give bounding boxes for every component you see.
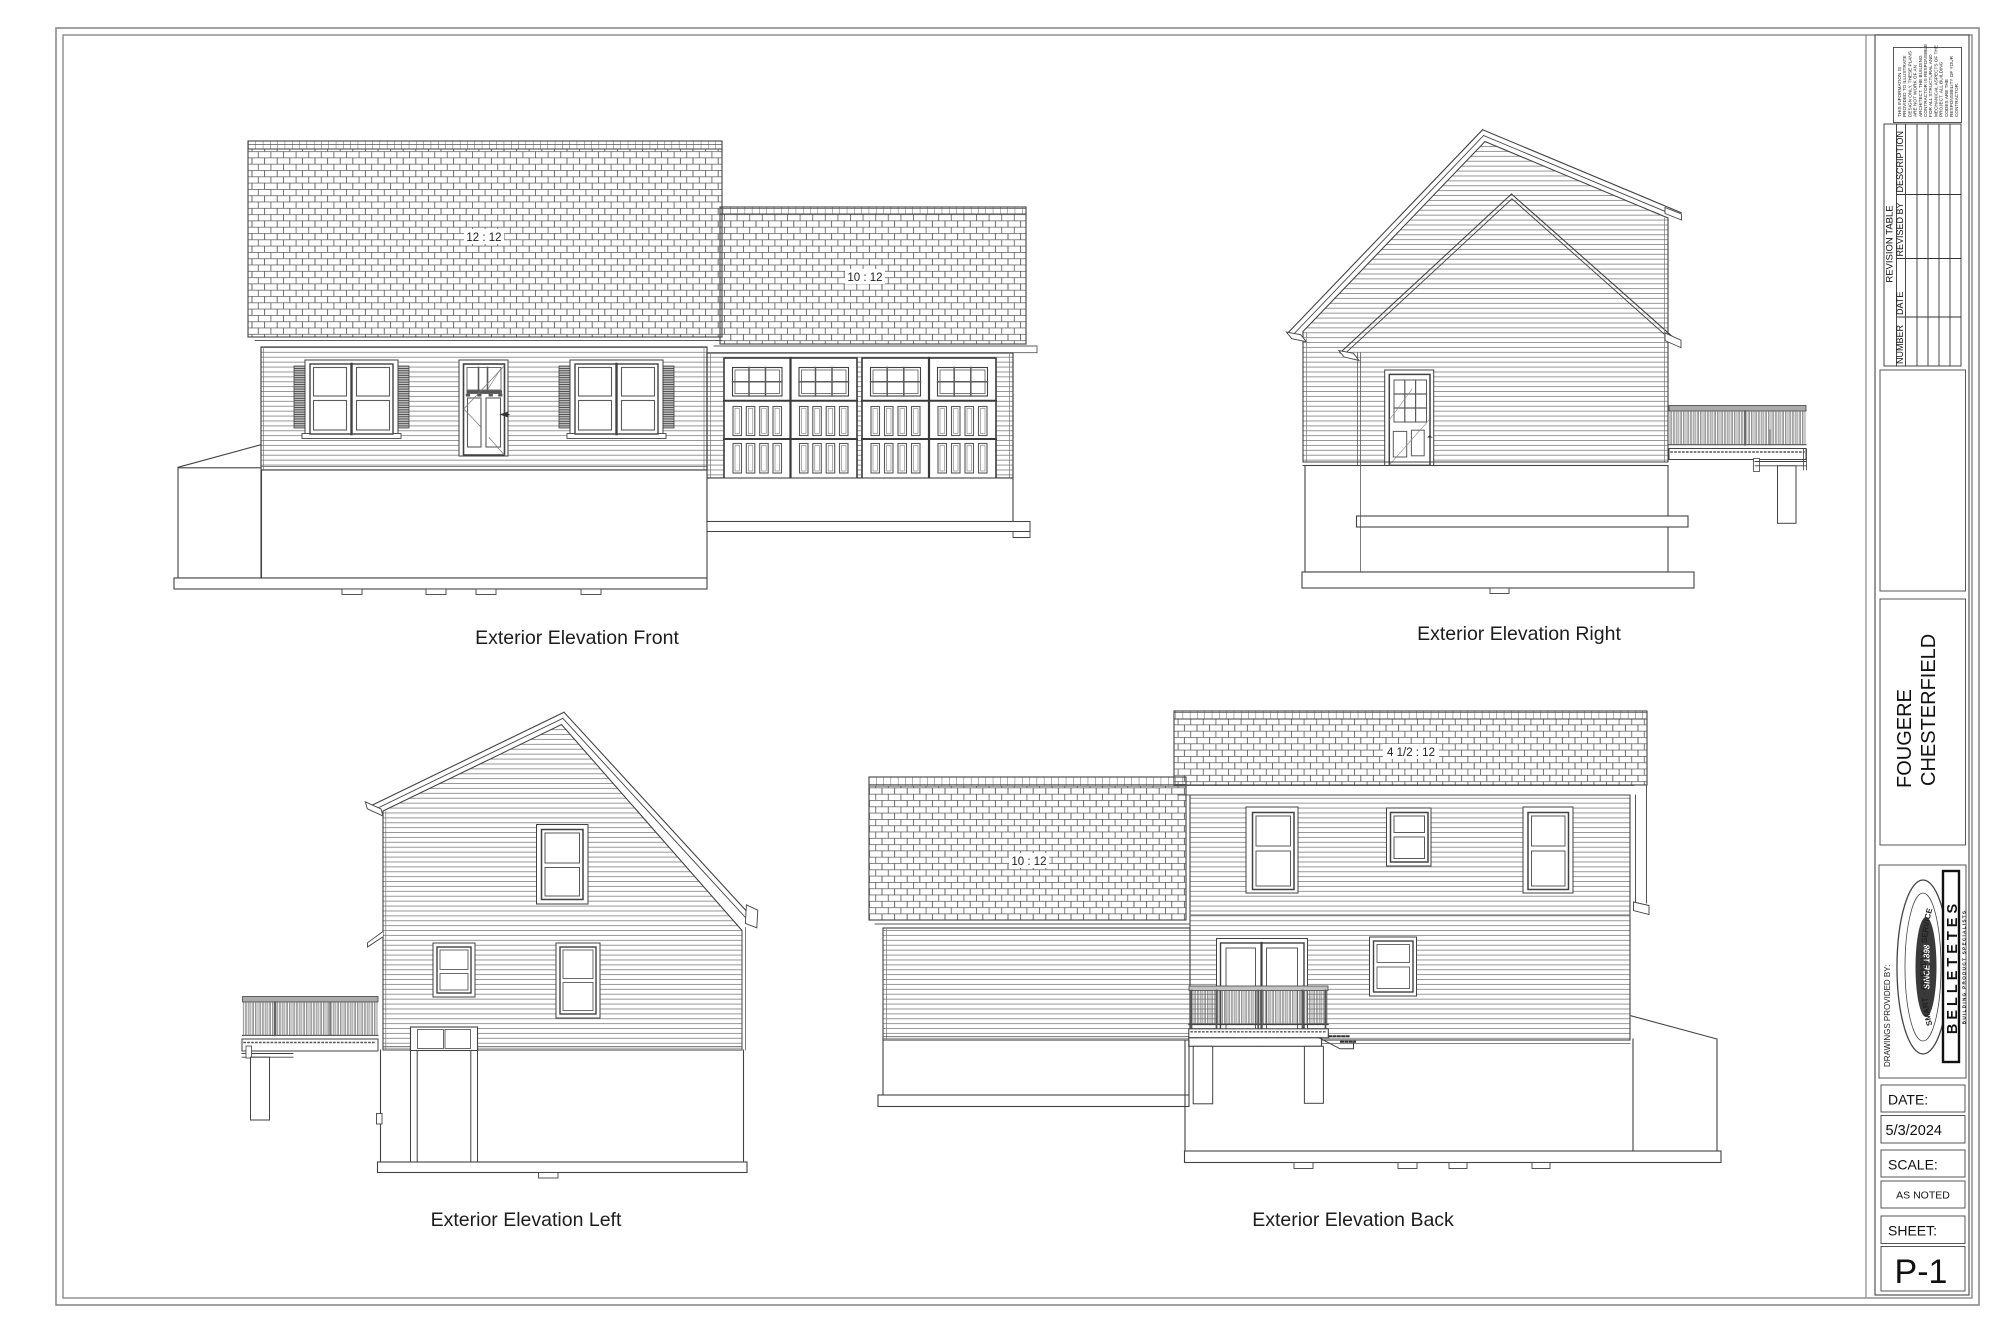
svg-text:CONTRACTOR.: CONTRACTOR.: [1954, 83, 1959, 117]
svg-text:NUMBER: NUMBER: [1895, 324, 1905, 364]
svg-text:P-1: P-1: [1895, 1253, 1948, 1291]
svg-text:SHEET:: SHEET:: [1888, 1223, 1937, 1239]
svg-text:REVISED BY: REVISED BY: [1895, 202, 1905, 256]
svg-text:Exterior Elevation Left: Exterior Elevation Left: [431, 1209, 622, 1231]
svg-text:CHESTERFIELD: CHESTERFIELD: [1918, 634, 1940, 786]
svg-text:Exterior Elevation Back: Exterior Elevation Back: [1252, 1209, 1454, 1231]
svg-text:4 1/2 : 12: 4 1/2 : 12: [1387, 747, 1435, 759]
svg-text:Exterior Elevation Front: Exterior Elevation Front: [475, 627, 679, 649]
svg-text:10 : 12: 10 : 12: [847, 272, 882, 284]
svg-text:BELLETETES: BELLETETES: [1945, 900, 1961, 1034]
svg-text:DATE: DATE: [1895, 292, 1905, 315]
svg-text:DRAWINGS PROVIDED BY:: DRAWINGS PROVIDED BY:: [1883, 965, 1892, 1067]
svg-text:DATE:: DATE:: [1888, 1092, 1928, 1108]
svg-text:DESCRIPTION: DESCRIPTION: [1895, 131, 1905, 193]
svg-text:AS NOTED: AS NOTED: [1896, 1190, 1950, 1202]
svg-text:12 : 12: 12 : 12: [466, 232, 501, 244]
svg-text:SCALE:: SCALE:: [1888, 1157, 1938, 1173]
svg-text:BUILDING PRODUCT SPECIALISTS: BUILDING PRODUCT SPECIALISTS: [1962, 910, 1968, 1025]
svg-text:REVISION TABLE: REVISION TABLE: [1885, 205, 1896, 282]
svg-text:Exterior Elevation Right: Exterior Elevation Right: [1417, 623, 1621, 645]
svg-text:FOUGERE: FOUGERE: [1894, 689, 1916, 788]
svg-text:10 : 12: 10 : 12: [1011, 856, 1046, 868]
svg-text:5/3/2024: 5/3/2024: [1886, 1123, 1942, 1139]
